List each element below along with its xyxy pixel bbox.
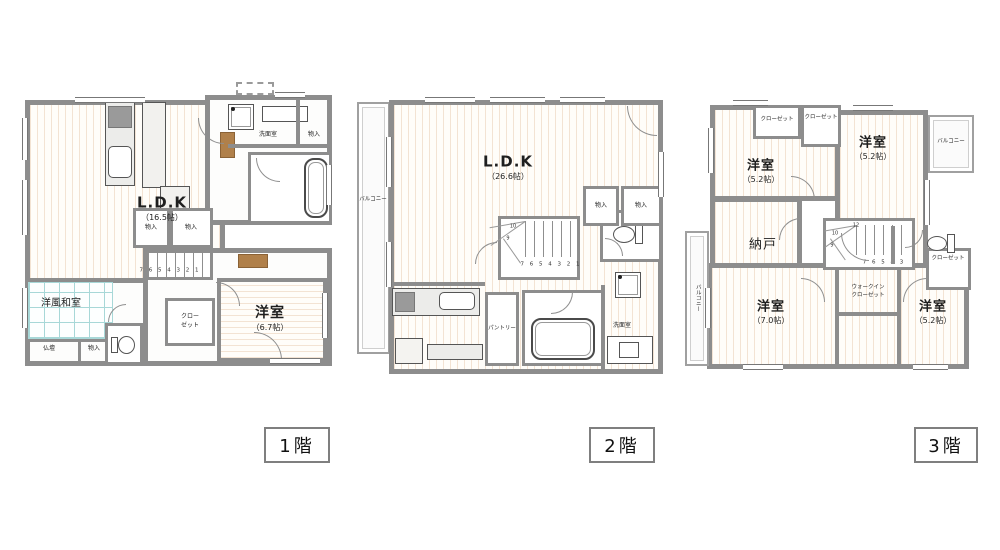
storage-label: 物入 <box>88 346 100 352</box>
butsudan-label: 仏壇 <box>43 346 55 352</box>
room-label-ldk: L.D.K <box>137 196 187 211</box>
wic-label-line1: ウォークイン <box>851 285 884 291</box>
toilet-tank-icon <box>947 234 955 253</box>
stairs-number: 12 <box>853 224 859 229</box>
bathtub-icon <box>304 158 328 218</box>
window <box>705 288 711 328</box>
kitchen-cabinet <box>142 102 166 188</box>
pantry-label: パントリー <box>488 326 516 332</box>
washing-machine-icon <box>228 104 254 130</box>
sink-icon <box>439 292 475 310</box>
toilet-icon <box>118 336 135 354</box>
stairs-number: 10 <box>832 232 838 237</box>
floor-3-plan: 12 10 9 7 6 5 4 3 クローゼット クローゼット 洋室 <box>683 98 979 374</box>
storage-label: 物入 <box>595 203 607 209</box>
floor-3-tag-label: 3階 <box>928 432 963 458</box>
bedroom-size: （6.7帖） <box>252 324 289 332</box>
bedroom-b-label: 洋室 <box>859 137 887 150</box>
stairs-runlines <box>525 221 577 257</box>
floor-2-tag: 2階 <box>589 427 655 463</box>
floor-1-tag-label: 1階 <box>279 432 314 458</box>
window <box>22 288 28 328</box>
floor3-wall <box>891 226 895 264</box>
window <box>733 100 768 106</box>
floor1-wall <box>28 339 113 342</box>
storage-label: 物入 <box>145 225 157 231</box>
stairs-number: 9 <box>506 237 509 242</box>
stairs-numbers: 7 6 5 4 3 2 1 <box>140 268 201 274</box>
window <box>75 97 145 103</box>
balcony-label: バルコニー <box>359 197 386 203</box>
floor3-wall <box>835 268 839 364</box>
window <box>322 293 328 338</box>
stove-icon <box>395 292 415 312</box>
floor1-wall <box>228 144 332 148</box>
closet-label: クローゼット <box>760 117 793 123</box>
stove-icon <box>108 106 132 128</box>
floor2-wall <box>389 282 485 286</box>
vanity-icon <box>262 106 308 122</box>
floor3-wall <box>835 312 901 316</box>
toilet-icon <box>613 226 635 243</box>
window <box>425 97 475 103</box>
floor-1-tag: 1階 <box>264 427 330 463</box>
floor3-wall <box>897 268 901 364</box>
window <box>560 97 605 103</box>
bedroom-c-label: 洋室 <box>757 301 785 314</box>
window <box>658 152 664 197</box>
floorplan-canvas: L.D.K （16.5帖） 物入 物入 洗面室 物入 洋風和室 仏壇 物入 クロ… <box>0 0 1000 550</box>
stairs-number: 10 <box>510 225 516 230</box>
shoe-cabinet <box>238 254 268 268</box>
window <box>924 180 930 225</box>
floor1-tatami-area <box>28 282 113 339</box>
window <box>270 358 320 364</box>
window <box>22 180 28 235</box>
kitchen-cabinet-low <box>427 344 483 360</box>
window <box>326 165 332 205</box>
toilet-tank-icon <box>111 337 118 353</box>
wic-label-line2: クローゼット <box>851 293 884 299</box>
floor3-closet-b <box>801 105 841 147</box>
window <box>386 242 392 287</box>
balcony-label: バルコニー <box>694 284 700 312</box>
stairs-numbers: 7 6 5 4 3 2 1 <box>521 262 582 268</box>
closet-label: クローゼット <box>804 115 837 121</box>
room-label-ldk: L.D.K <box>483 155 533 170</box>
window <box>275 92 305 98</box>
washroom-label: 洗面室 <box>259 132 277 138</box>
floor2-stairs: 10 9 7 6 5 4 3 2 1 <box>498 216 580 280</box>
window <box>853 105 893 111</box>
washing-machine-icon <box>615 272 641 298</box>
floor1-wall <box>78 340 81 364</box>
room-size-ldk: （16.5帖） <box>141 214 183 222</box>
washroom-label: 洗面室 <box>613 323 631 329</box>
stairs-winder-line <box>503 238 521 263</box>
floor2-wall <box>601 285 605 372</box>
window <box>386 137 392 187</box>
window <box>913 364 948 370</box>
floor-3-tag: 3階 <box>914 427 978 463</box>
bedroom-c-size: （7.0帖） <box>753 317 790 325</box>
toilet-icon <box>927 236 947 251</box>
storage-label: 物入 <box>185 225 197 231</box>
floor1-stairs <box>145 250 213 280</box>
vanity-bowl-icon <box>619 342 639 358</box>
storage-label: 物入 <box>308 132 320 138</box>
bedroom-b-size: （5.2帖） <box>855 153 892 161</box>
storeroom-label: 納戸 <box>749 239 777 252</box>
bedroom-a-size: （5.2帖） <box>743 176 780 184</box>
floor-2-tag-label: 2階 <box>604 432 639 458</box>
bedroom-d-size: （5.2帖） <box>915 317 952 325</box>
floor1-wall <box>296 100 300 146</box>
sink-icon <box>108 146 132 178</box>
balcony-label: バルコニー <box>937 139 964 145</box>
window <box>22 118 28 160</box>
room-size-ldk: （26.6帖） <box>487 173 529 181</box>
closet-label-line2: ゼット <box>181 323 199 329</box>
window <box>708 128 714 173</box>
toilet-tank-icon <box>635 225 643 244</box>
closet-label: クローゼット <box>931 256 964 262</box>
stairs-number: 9 <box>830 244 833 249</box>
floor-1-plan: L.D.K （16.5帖） 物入 物入 洗面室 物入 洋風和室 仏壇 物入 クロ… <box>20 88 335 370</box>
bedroom-label: 洋室 <box>255 306 285 320</box>
closet-label-line1: クロー <box>181 314 199 320</box>
kitchen-cabinet <box>395 338 423 364</box>
floor-2-plan: 10 9 7 6 5 4 3 2 1 <box>355 92 667 377</box>
storage-label: 物入 <box>635 203 647 209</box>
japanese-room-label: 洋風和室 <box>41 299 81 309</box>
porch-outline <box>236 82 274 95</box>
bedroom-d-label: 洋室 <box>919 301 947 314</box>
bathtub-icon <box>531 318 595 360</box>
window <box>490 97 545 103</box>
window <box>743 364 783 370</box>
stairs-numbers: 7 6 5 4 3 <box>863 260 906 266</box>
bedroom-a-label: 洋室 <box>747 160 775 173</box>
floor3-stairs: 12 10 9 7 6 5 4 3 <box>823 218 915 270</box>
